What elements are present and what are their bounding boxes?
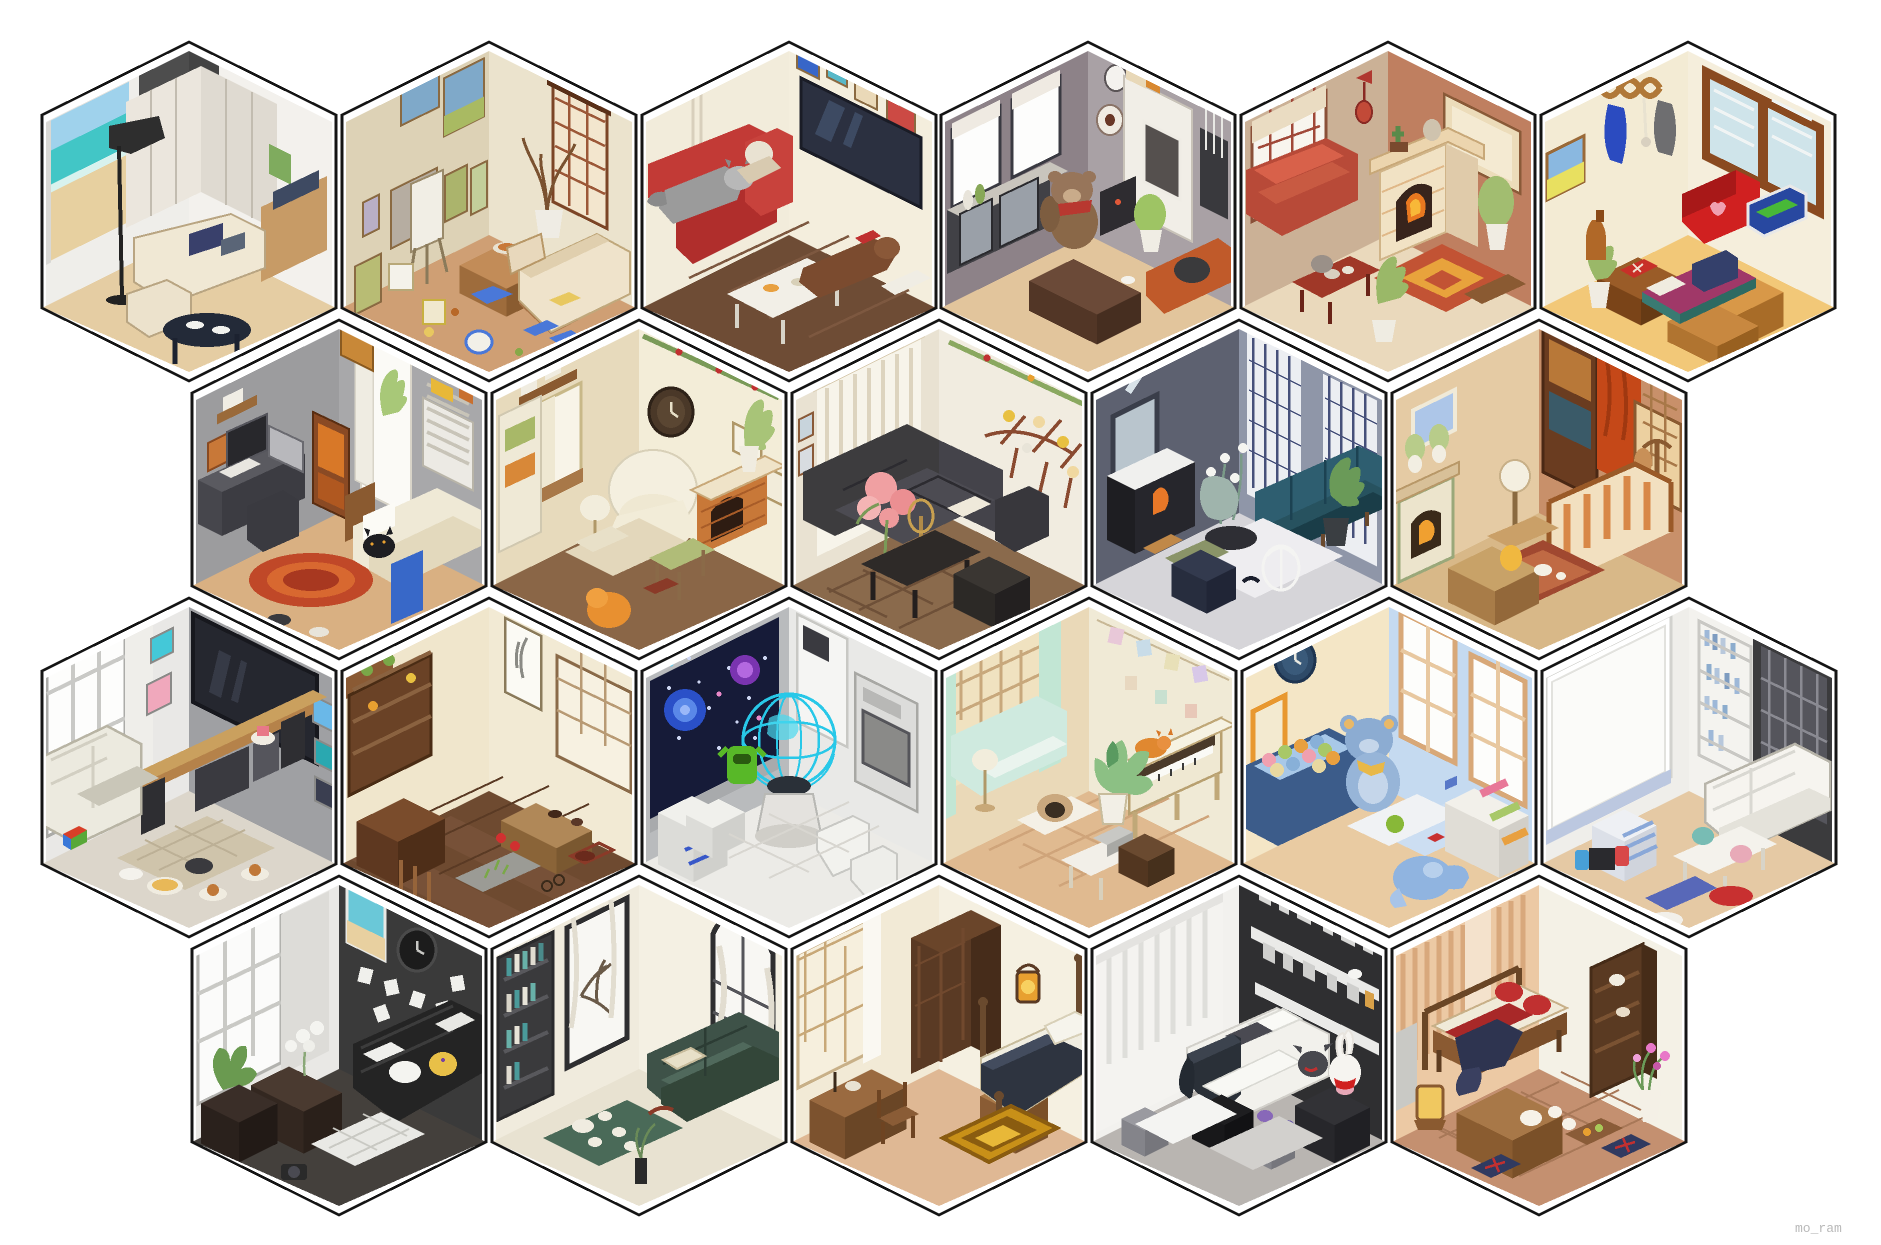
svg-text:mo_ram: mo_ram [1795, 1221, 1842, 1236]
